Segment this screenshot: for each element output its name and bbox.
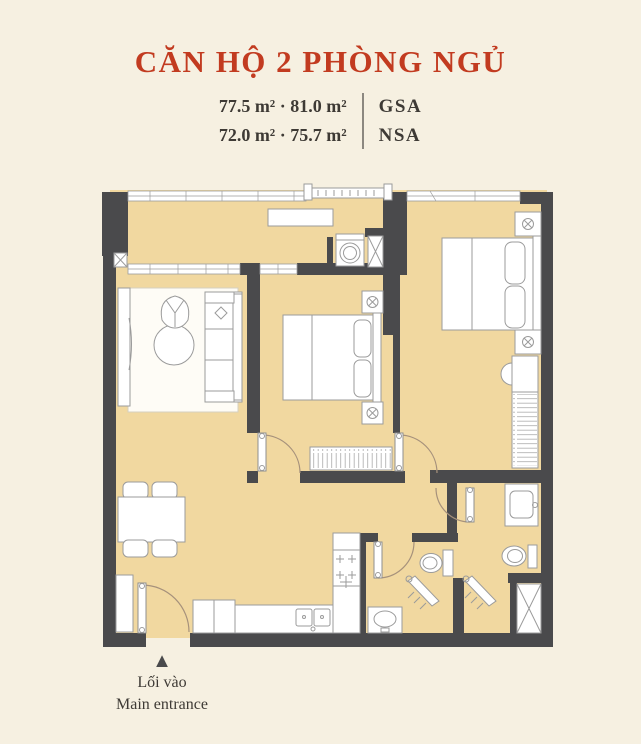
pillow <box>505 242 525 284</box>
armchair <box>161 296 189 328</box>
toilet-icon <box>502 545 537 568</box>
area-values: 77.5 m² · 81.0 m² 72.0 m² · 75.7 m² <box>219 92 347 150</box>
bed-bedroom2 <box>283 312 381 403</box>
nightstand-lamp-icon <box>362 291 383 313</box>
washing-machine-icon <box>336 234 364 266</box>
dining-chair <box>152 482 177 499</box>
sofa <box>205 292 242 402</box>
nsa-label: NSA <box>379 121 423 150</box>
page: CĂN HỘ 2 PHÒNG NGỦ 77.5 m² · 81.0 m² 72.… <box>0 0 641 744</box>
dining-chair <box>123 540 148 557</box>
area-labels: GSA NSA <box>379 92 423 150</box>
entry-cabinet <box>116 575 133 632</box>
balcony-shelf <box>268 209 333 226</box>
nightstand-lamp-icon <box>362 402 383 424</box>
entrance-note: ▲ Lối vào Main entrance <box>62 650 262 716</box>
louver-door-icon <box>368 236 383 267</box>
living-room <box>118 288 242 412</box>
page-title: CĂN HỘ 2 PHÒNG NGỦ <box>0 44 641 80</box>
tv-console <box>118 288 132 406</box>
dining-table <box>118 497 185 542</box>
pillow <box>505 286 525 328</box>
area-stats: 77.5 m² · 81.0 m² 72.0 m² · 75.7 m² GSA … <box>0 92 641 150</box>
pillow <box>354 360 371 397</box>
shaft-icon <box>517 584 541 633</box>
entrance-label-en: Main entrance <box>62 694 262 716</box>
floor-plan <box>100 176 555 651</box>
wardrobe-bedroom2 <box>310 447 392 470</box>
bathroom-sink-icon <box>505 484 538 526</box>
dining-chair <box>123 482 148 499</box>
dining-set <box>118 482 185 557</box>
window-top-left <box>128 191 306 201</box>
nsa-area-value: 72.0 m² · 75.7 m² <box>219 121 347 150</box>
gsa-area-value: 77.5 m² · 81.0 m² <box>219 92 347 121</box>
stats-divider <box>362 93 364 149</box>
fridge-icon <box>193 600 235 633</box>
ac-unit-icon <box>114 253 127 267</box>
dining-chair <box>152 540 177 557</box>
gsa-label: GSA <box>379 92 423 121</box>
window-top-right <box>407 191 520 201</box>
floor-plan-container <box>100 176 555 651</box>
entrance-arrow-icon: ▲ <box>62 650 262 672</box>
nightstand-lamp-icon <box>515 212 541 236</box>
pillow <box>354 320 371 357</box>
ac-ledge-icon <box>304 184 392 200</box>
wardrobe-master <box>512 392 538 468</box>
entrance-label-vi: Lối vào <box>62 672 262 694</box>
bed-master <box>442 234 541 334</box>
coffee-table <box>154 325 194 365</box>
window-balcony-bedroom2 <box>260 264 297 274</box>
nightstand-lamp-icon <box>515 330 541 354</box>
window-balcony-living <box>128 264 240 274</box>
stove-icon <box>333 550 360 588</box>
bathroom-sink-icon <box>368 607 402 633</box>
